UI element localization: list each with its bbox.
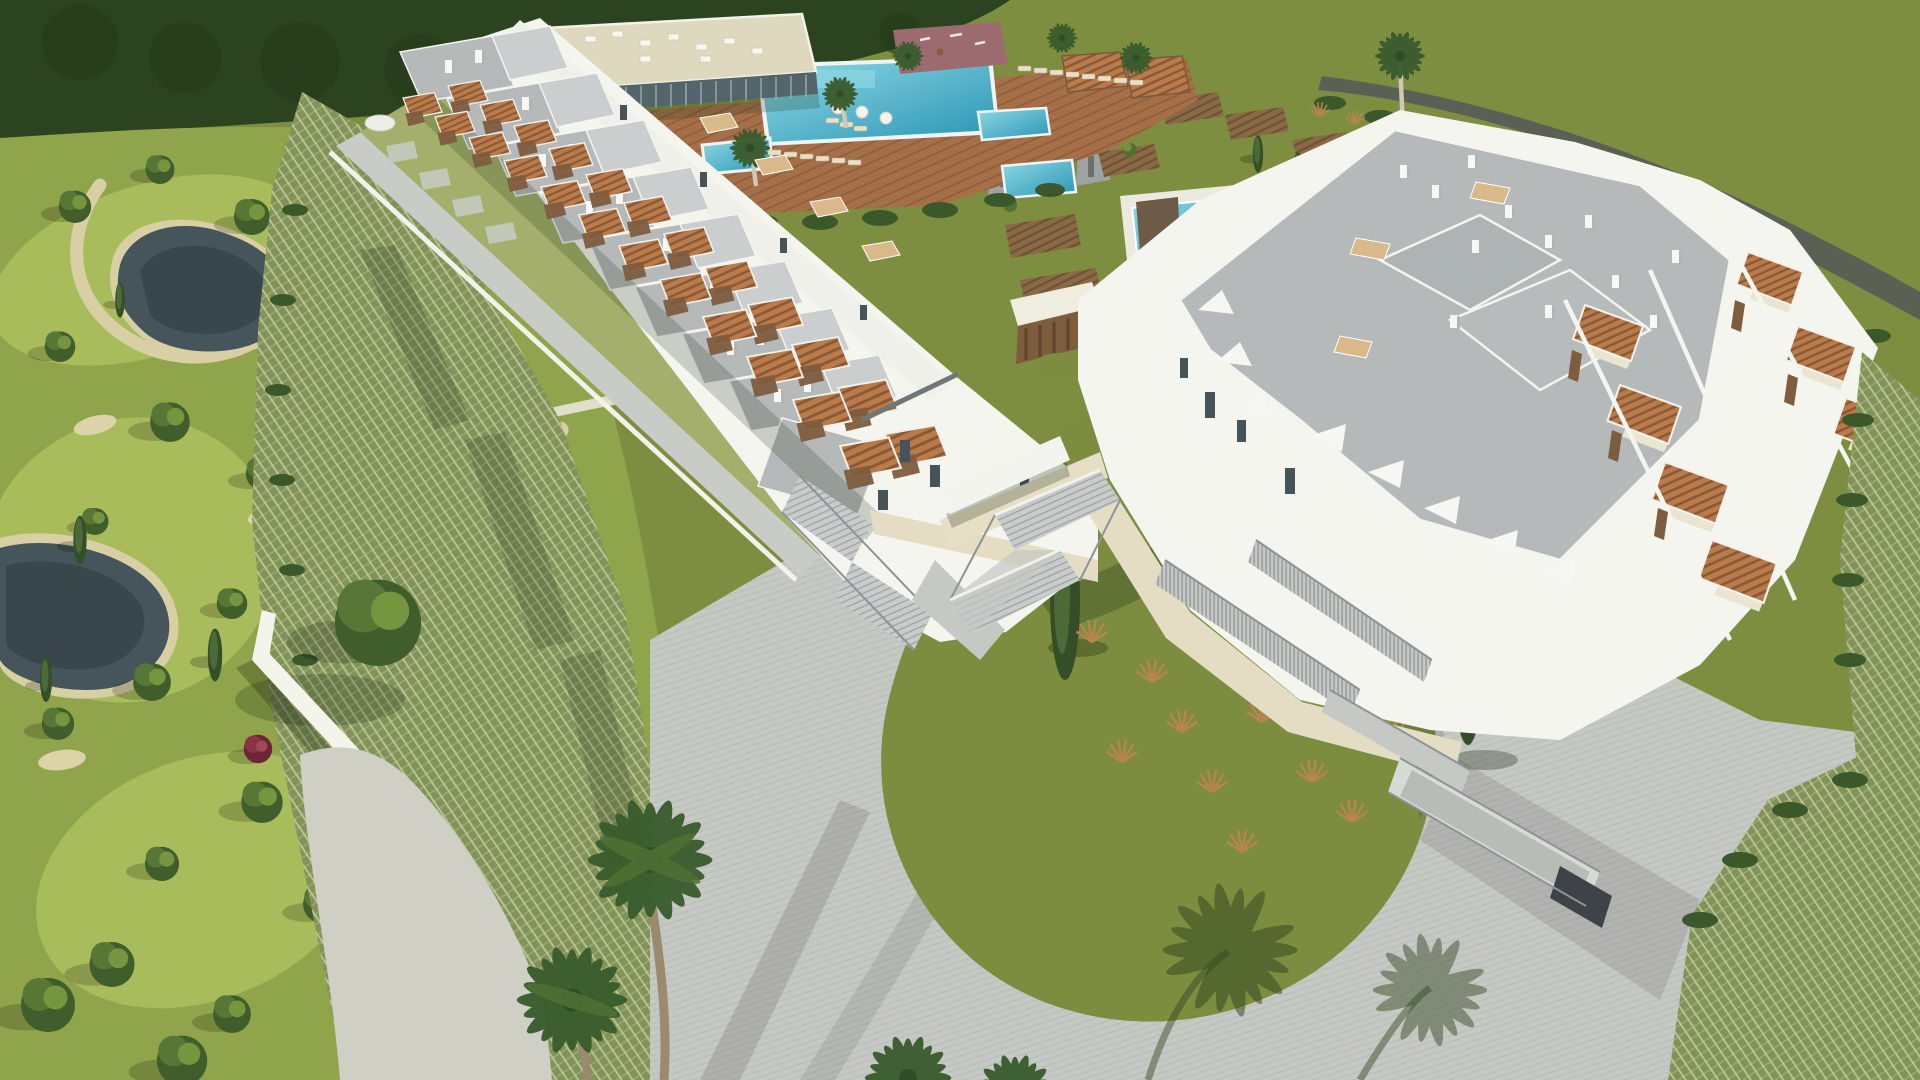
kids-pool bbox=[978, 108, 1050, 140]
render-viewport bbox=[0, 0, 1920, 1080]
aerial-render bbox=[0, 0, 1920, 1080]
trampoline bbox=[365, 115, 395, 131]
